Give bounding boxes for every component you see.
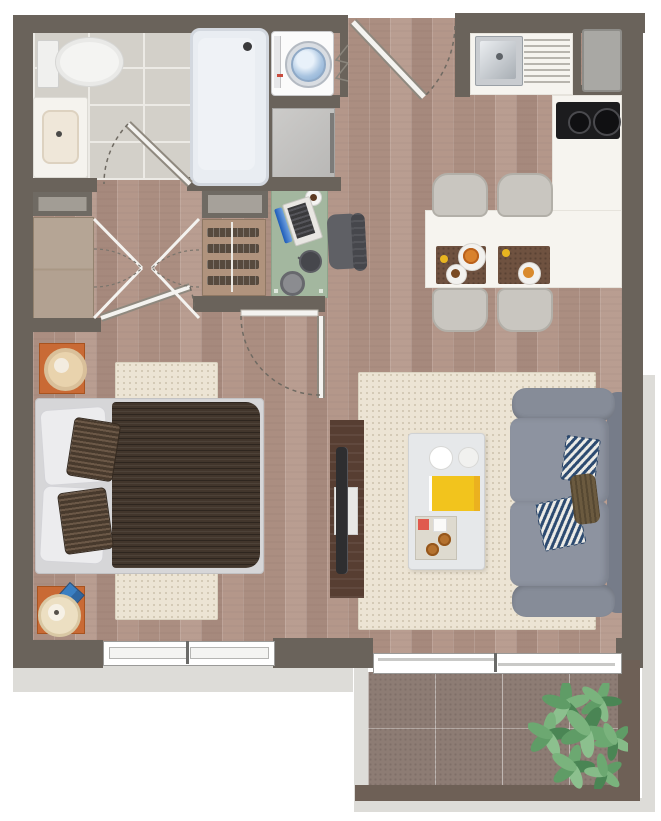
wardrobe-door-arc [94, 249, 142, 268]
floor-plan [0, 0, 661, 821]
closet-door-leaf [152, 219, 199, 268]
closet-door-leaf [152, 268, 199, 318]
hall-bedroom-door-leaf [101, 287, 190, 318]
bifold-door-marks [336, 45, 348, 81]
bathroom-door-arc [104, 124, 128, 184]
bedroom-door-arc [241, 316, 320, 395]
bathroom-door-leaf [128, 124, 190, 184]
entry-door-leaf [353, 22, 424, 97]
bedroom-door-lintel [241, 310, 318, 316]
door-swing-overlay [0, 0, 661, 821]
entry-door-arc [424, 26, 455, 97]
wardrobe-door-leaf [94, 219, 142, 268]
